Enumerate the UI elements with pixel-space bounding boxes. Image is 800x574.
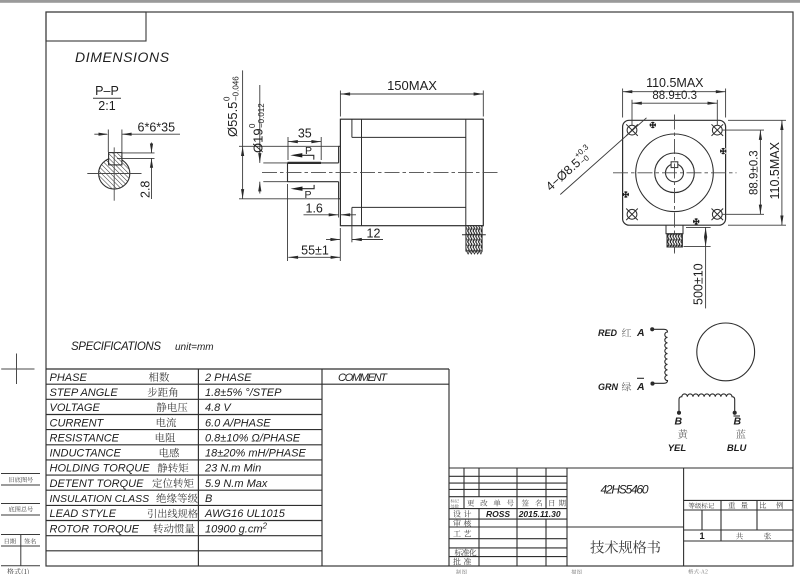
svg-text:unit=mm: unit=mm	[175, 342, 214, 353]
svg-text:−0.046: −0.046	[231, 76, 240, 101]
svg-text:A: A	[636, 327, 645, 339]
svg-text:150MAX: 150MAX	[387, 78, 437, 93]
svg-text:VOLTAGE: VOLTAGE	[50, 402, 101, 414]
svg-text:DIMENSIONS: DIMENSIONS	[75, 49, 170, 65]
svg-text:P: P	[305, 145, 312, 157]
svg-text:PHASE: PHASE	[50, 372, 88, 384]
svg-text:6*6*35: 6*6*35	[138, 121, 176, 135]
svg-text:23 N.m Min: 23 N.m Min	[204, 463, 261, 475]
svg-text:RED: RED	[598, 328, 618, 338]
svg-text:500±10: 500±10	[692, 263, 706, 305]
svg-text:ROSS: ROSS	[486, 509, 510, 519]
svg-text:INSULATION CLASS: INSULATION CLASS	[50, 493, 150, 505]
svg-text:SPECIFICATIONS: SPECIFICATIONS	[71, 341, 161, 353]
svg-text:4.8 V: 4.8 V	[205, 402, 232, 414]
svg-text:2:1: 2:1	[98, 99, 115, 113]
svg-text:5.9 N.m Max: 5.9 N.m Max	[205, 478, 268, 490]
svg-text:P: P	[305, 189, 312, 201]
svg-text:12: 12	[367, 227, 381, 241]
svg-text:B: B	[205, 493, 212, 505]
svg-text:LEAD STYLE: LEAD STYLE	[50, 508, 117, 520]
svg-text:COMMENT: COMMENT	[338, 372, 388, 384]
svg-text:6.0 A/PHASE: 6.0 A/PHASE	[205, 417, 271, 429]
svg-text:Ø55.5: Ø55.5	[225, 102, 240, 137]
svg-text:P–P: P–P	[95, 84, 119, 98]
svg-text:DETENT TORQUE: DETENT TORQUE	[50, 478, 145, 490]
svg-text:B: B	[734, 416, 742, 428]
svg-text:ROTOR TORQUE: ROTOR TORQUE	[50, 523, 140, 535]
svg-text:2 PHASE: 2 PHASE	[204, 372, 252, 384]
svg-text:110.5MAX: 110.5MAX	[646, 76, 704, 90]
svg-text:88.9±0.3: 88.9±0.3	[749, 150, 761, 195]
svg-text:2.8: 2.8	[139, 181, 153, 198]
svg-text:B: B	[675, 416, 683, 428]
svg-text:18±20% mH/PHASE: 18±20% mH/PHASE	[205, 448, 306, 460]
svg-text:2015.11.30: 2015.11.30	[518, 509, 561, 519]
svg-text:35: 35	[298, 127, 312, 141]
svg-text:42HS5460: 42HS5460	[601, 483, 649, 497]
svg-text:STEP ANGLE: STEP ANGLE	[50, 387, 119, 399]
svg-text:CURRENT: CURRENT	[50, 417, 105, 429]
svg-text:10900 g.cm2: 10900 g.cm2	[205, 521, 267, 535]
svg-text:BLU: BLU	[727, 443, 748, 454]
svg-text:110.5MAX: 110.5MAX	[768, 141, 782, 199]
svg-text:YEL: YEL	[668, 443, 687, 454]
svg-text:0.8±10% Ω/PHASE: 0.8±10% Ω/PHASE	[205, 432, 301, 444]
svg-text:HOLDING TORQUE: HOLDING TORQUE	[50, 463, 151, 475]
svg-text:RESISTANCE: RESISTANCE	[50, 432, 120, 444]
svg-text:GRN: GRN	[598, 382, 619, 392]
svg-text:0: 0	[248, 123, 257, 128]
svg-text:88.9±0.3: 88.9±0.3	[652, 90, 697, 102]
svg-text:1.8±5% °/STEP: 1.8±5% °/STEP	[205, 387, 282, 399]
svg-text:INDUCTANCE: INDUCTANCE	[50, 448, 122, 460]
svg-text:0: 0	[222, 96, 231, 101]
svg-text:Ø19: Ø19	[251, 128, 266, 153]
svg-text:1.6: 1.6	[306, 202, 323, 216]
svg-text:−0.012: −0.012	[257, 103, 266, 128]
svg-text:A: A	[636, 381, 645, 393]
svg-text:AWG16 UL1015: AWG16 UL1015	[204, 508, 286, 520]
svg-text:55±1: 55±1	[301, 244, 329, 258]
svg-text:1: 1	[699, 531, 705, 542]
